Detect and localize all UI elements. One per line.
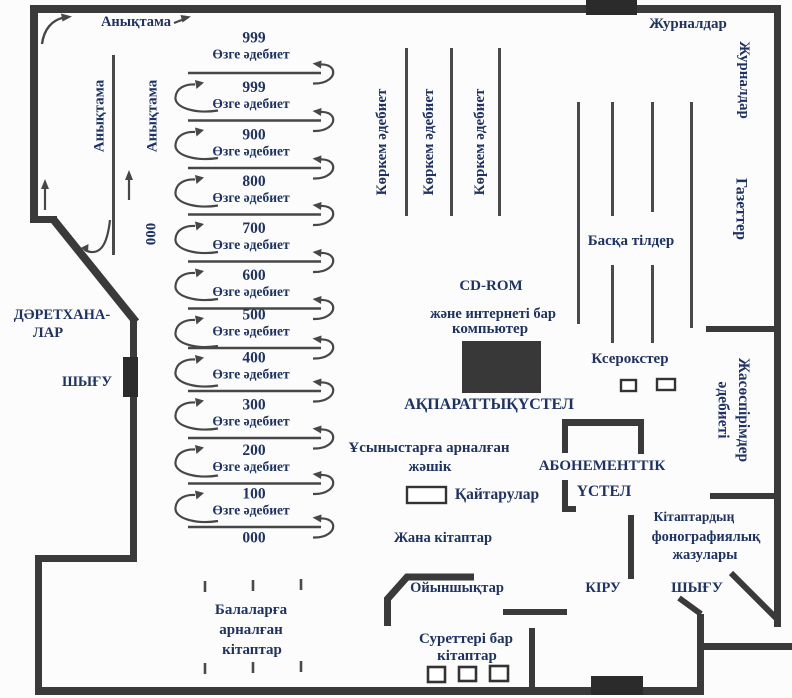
svg-text:Жана кітаптар: Жана кітаптар [394, 530, 492, 546]
svg-text:999: 999 [242, 30, 266, 47]
svg-text:Өзге әдебиет: Өзге әдебиет [212, 367, 290, 382]
svg-text:200: 200 [242, 442, 266, 459]
svg-text:Өзге әдебиет: Өзге әдебиет [212, 144, 290, 159]
svg-text:ДӘРЕТХАНА-: ДӘРЕТХАНА- [14, 307, 111, 323]
svg-text:Өзге әдебиет: Өзге әдебиет [212, 459, 290, 474]
svg-text:фонографиялық: фонографиялық [652, 529, 761, 545]
svg-text:кітаптар: кітаптар [437, 648, 497, 664]
svg-text:600: 600 [242, 267, 266, 284]
svg-text:кітаптар: кітаптар [222, 642, 282, 658]
svg-text:900: 900 [242, 127, 266, 144]
svg-text:Өзге әдебиет: Өзге әдебиет [212, 324, 290, 339]
svg-text:Басқа тілдер: Басқа тілдер [588, 233, 675, 249]
svg-text:999: 999 [242, 79, 266, 96]
svg-text:Журналдар: Журналдар [649, 16, 727, 32]
svg-text:КІРУ: КІРУ [585, 580, 621, 596]
svg-text:жазулары: жазулары [673, 547, 738, 563]
svg-text:Өзге әдебиет: Өзге әдебиет [212, 414, 290, 429]
svg-text:Өзге әдебиет: Өзге әдебиет [212, 503, 290, 518]
svg-text:Ұсыныстарға арналған: Ұсыныстарға арналған [348, 440, 510, 456]
svg-text:300: 300 [242, 397, 266, 414]
svg-text:Балаларға: Балаларға [215, 602, 288, 618]
svg-text:АБОНЕМЕНТТІК: АБОНЕМЕНТТІК [539, 458, 666, 474]
svg-text:500: 500 [242, 307, 266, 324]
svg-text:Өзге әдебиет: Өзге әдебиет [212, 96, 290, 111]
svg-text:Газеттер: Газеттер [733, 178, 750, 240]
svg-text:Өзге әдебиет: Өзге әдебиет [212, 284, 290, 299]
svg-text:Өзге әдебиет: Өзге әдебиет [212, 47, 290, 62]
svg-text:000: 000 [144, 223, 160, 246]
svg-text:арналған: арналған [219, 622, 283, 638]
svg-text:АҚПАРАТТЫҚҮСТЕЛ: АҚПАРАТТЫҚҮСТЕЛ [404, 396, 574, 413]
svg-text:Өзге әдебиет: Өзге әдебиет [212, 190, 290, 205]
svg-text:Анықтама: Анықтама [145, 79, 161, 152]
svg-text:ШЫҒУ: ШЫҒУ [671, 580, 723, 596]
svg-text:700: 700 [242, 220, 266, 237]
svg-text:400: 400 [242, 350, 266, 367]
svg-text:Анықтама: Анықтама [92, 79, 108, 152]
svg-text:Өзге әдебиет: Өзге әдебиет [212, 237, 290, 252]
svg-text:ШЫҒУ: ШЫҒУ [62, 374, 112, 390]
svg-text:әдебиеті: әдебиеті [715, 381, 732, 439]
svg-text:Анықтама: Анықтама [101, 14, 172, 30]
svg-text:800: 800 [242, 173, 266, 190]
svg-text:ҮСТЕЛ: ҮСТЕЛ [577, 483, 632, 500]
svg-text:жәшік: жәшік [408, 459, 451, 475]
svg-text:Ойыншықтар: Ойыншықтар [410, 580, 504, 596]
svg-text:Журналдар: Журналдар [736, 41, 752, 119]
svg-text:Көркем әдебиет: Көркем әдебиет [374, 88, 390, 195]
svg-text:ЛАР: ЛАР [33, 325, 63, 341]
svg-text:100: 100 [242, 486, 266, 503]
svg-text:000: 000 [242, 530, 266, 547]
svg-text:Суреттері бар: Суреттері бар [419, 631, 513, 647]
svg-text:Көркем әдебиет: Көркем әдебиет [421, 88, 437, 195]
svg-text:және интернеті бар: және интернеті бар [430, 306, 556, 322]
svg-text:Ксерокстер: Ксерокстер [591, 351, 668, 367]
svg-text:Қайтарулар: Қайтарулар [455, 486, 539, 503]
svg-text:CD-ROM: CD-ROM [459, 278, 522, 294]
svg-text:Жасөспірімдер: Жасөспірімдер [735, 358, 752, 462]
svg-text:компьютер: компьютер [452, 321, 528, 337]
svg-text:Кітаптардың: Кітаптардың [654, 509, 735, 524]
svg-text:Көркем әдебиет: Көркем әдебиет [472, 88, 488, 195]
